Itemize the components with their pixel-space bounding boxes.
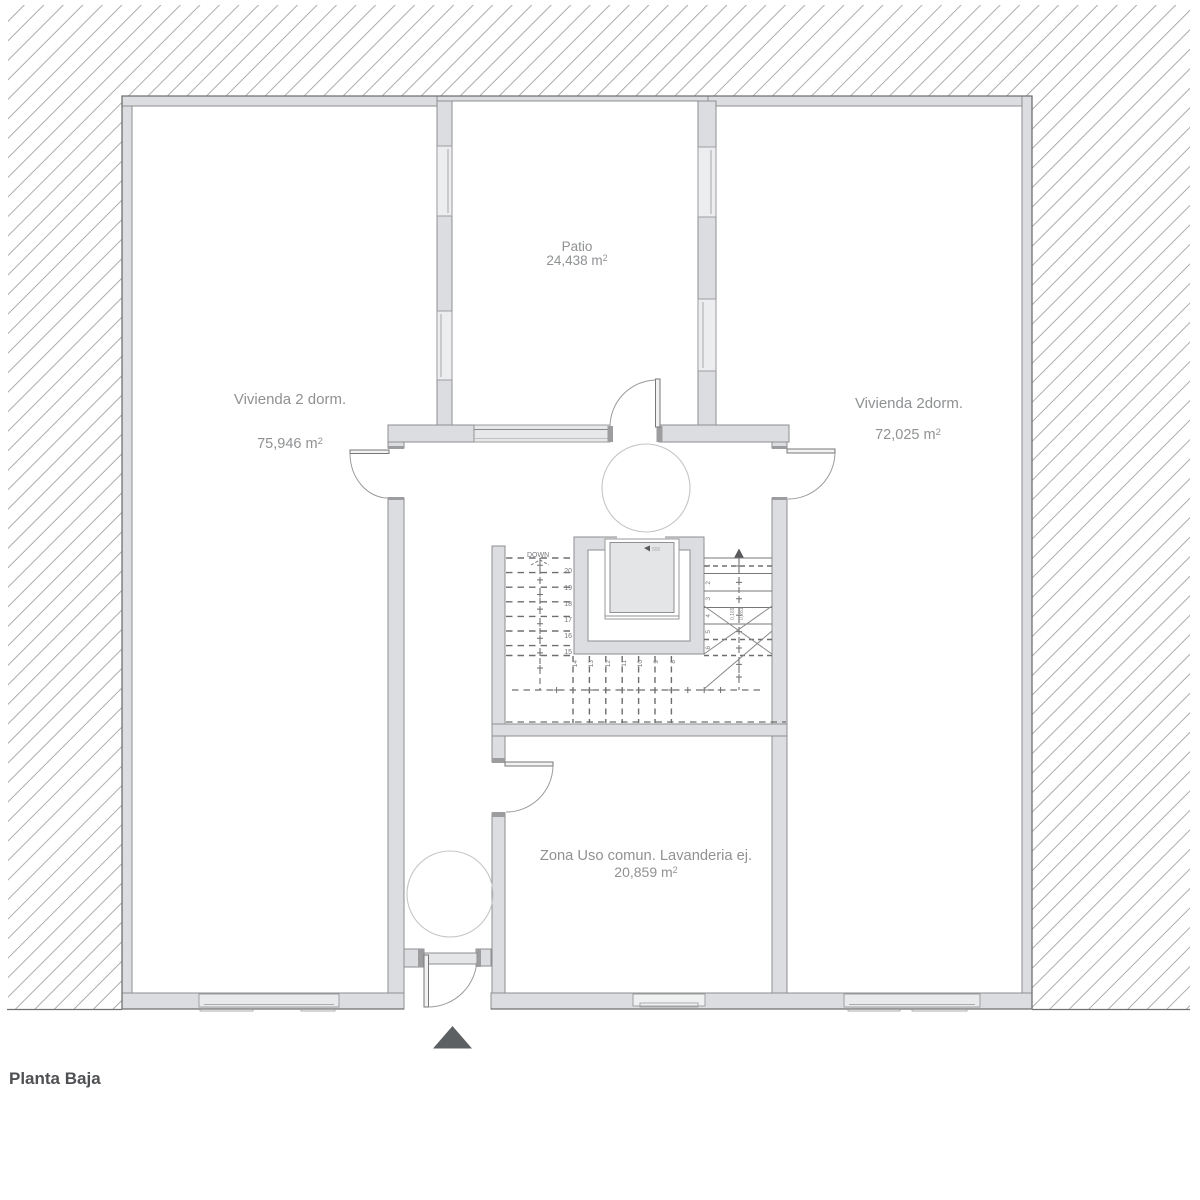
svg-text:19: 19 [564,585,572,592]
svg-text:17: 17 [564,617,572,624]
svg-text:20: 20 [564,568,572,575]
svg-text:16: 16 [564,633,572,640]
svg-text:4: 4 [705,614,712,618]
svg-text:2: 2 [705,581,712,585]
svg-text:5: 5 [705,630,712,634]
svg-text:Vivienda 2 dorm.: Vivienda 2 dorm. [234,391,346,408]
svg-text:0,169: 0,169 [730,607,736,620]
svg-text:14: 14 [572,660,579,668]
svg-text:12: 12 [605,660,612,668]
svg-text:20,859 m2: 20,859 m2 [614,864,677,880]
svg-text:13: 13 [588,660,595,668]
svg-text:500: 500 [652,547,661,553]
svg-text:18: 18 [564,601,572,608]
svg-text:Patio: Patio [562,239,593,254]
svg-text:75,946 m2: 75,946 m2 [257,436,323,452]
svg-text:10: 10 [637,660,644,668]
svg-text:1: 1 [705,564,712,568]
svg-text:DOWN: DOWN [527,552,549,559]
svg-text:9: 9 [653,660,660,664]
svg-text:Planta Baja: Planta Baja [9,1069,101,1088]
svg-text:72,025 m2: 72,025 m2 [875,427,941,443]
svg-text:11: 11 [621,660,628,667]
svg-text:Vivienda 2dorm.: Vivienda 2dorm. [855,395,963,412]
svg-text:3: 3 [705,597,712,601]
svg-text:15: 15 [564,649,572,656]
svg-text:Zona Uso comun. Lavanderia ej.: Zona Uso comun. Lavanderia ej. [540,848,752,864]
svg-text:24,438 m2: 24,438 m2 [546,253,607,268]
svg-text:6: 6 [705,646,712,650]
svg-text:8: 8 [670,660,677,664]
svg-text:0,281: 0,281 [739,607,745,620]
